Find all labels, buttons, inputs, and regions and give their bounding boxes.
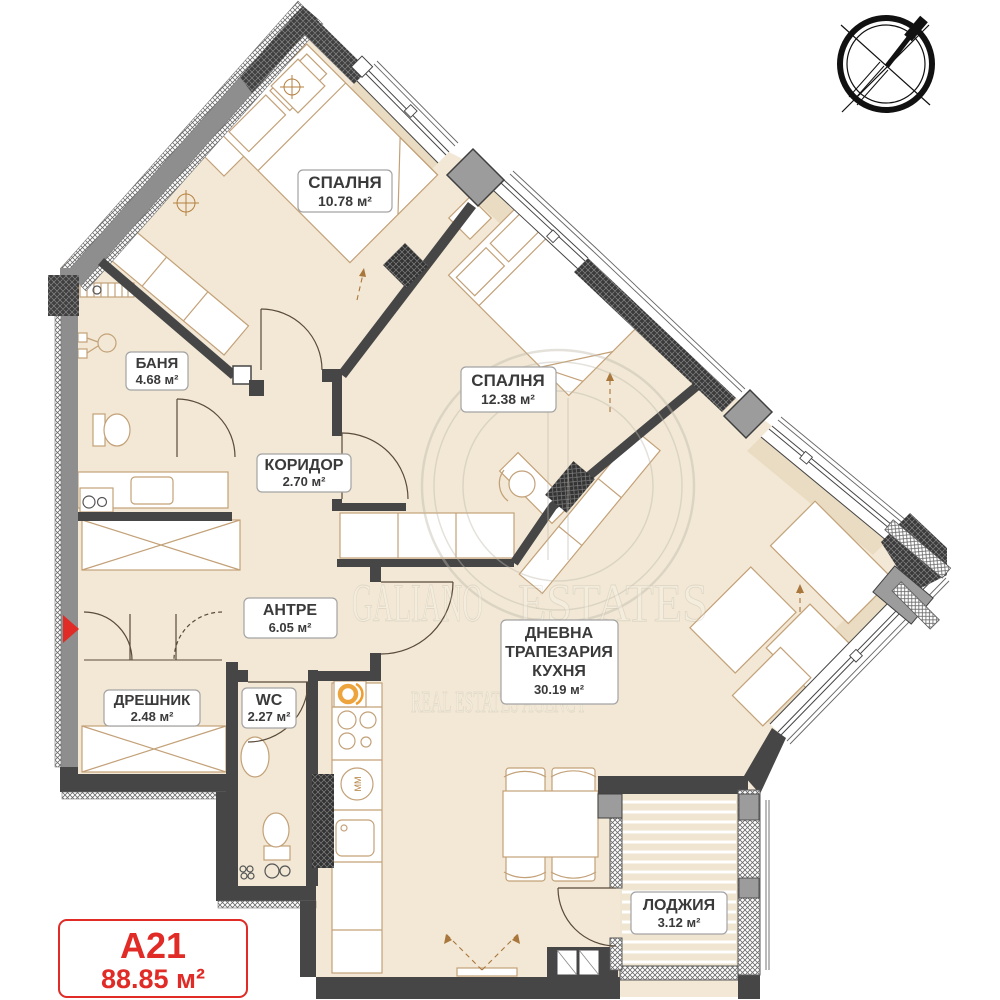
svg-text:ЛОДЖИЯ: ЛОДЖИЯ bbox=[643, 897, 715, 914]
svg-text:3.12 м²: 3.12 м² bbox=[658, 915, 702, 930]
svg-text:10.78 м²: 10.78 м² bbox=[318, 193, 372, 209]
svg-text:КУХНЯ: КУХНЯ bbox=[532, 663, 586, 680]
svg-text:ДРЕШНИК: ДРЕШНИК bbox=[114, 692, 191, 709]
svg-text:WC: WC bbox=[256, 692, 283, 709]
svg-text:2.70 м²: 2.70 м² bbox=[283, 474, 327, 489]
svg-text:30.19 м²: 30.19 м² bbox=[534, 682, 585, 697]
svg-text:2.48 м²: 2.48 м² bbox=[131, 709, 175, 724]
svg-text:СПАЛНЯ: СПАЛНЯ bbox=[308, 173, 381, 192]
svg-text:БАНЯ: БАНЯ bbox=[136, 355, 179, 372]
svg-text:ТРАПЕЗАРИЯ: ТРАПЕЗАРИЯ bbox=[505, 644, 613, 661]
svg-text:КОРИДОР: КОРИДОР bbox=[265, 457, 344, 474]
svg-text:MM: MM bbox=[353, 777, 363, 792]
svg-text:6.05 м²: 6.05 м² bbox=[269, 620, 313, 635]
svg-text:12.38 м²: 12.38 м² bbox=[481, 391, 535, 407]
svg-text:88.85 м²: 88.85 м² bbox=[101, 964, 205, 994]
svg-text:ДНЕВНА: ДНЕВНА bbox=[525, 625, 594, 642]
svg-text:АНТРЕ: АНТРЕ bbox=[263, 602, 318, 619]
svg-text:СПАЛНЯ: СПАЛНЯ bbox=[471, 371, 544, 390]
svg-text:GALIANO: GALIANO bbox=[352, 573, 483, 633]
svg-text:2.27 м²: 2.27 м² bbox=[248, 709, 292, 724]
svg-text:4.68 м²: 4.68 м² bbox=[136, 372, 180, 387]
svg-text:А21: А21 bbox=[120, 925, 186, 966]
